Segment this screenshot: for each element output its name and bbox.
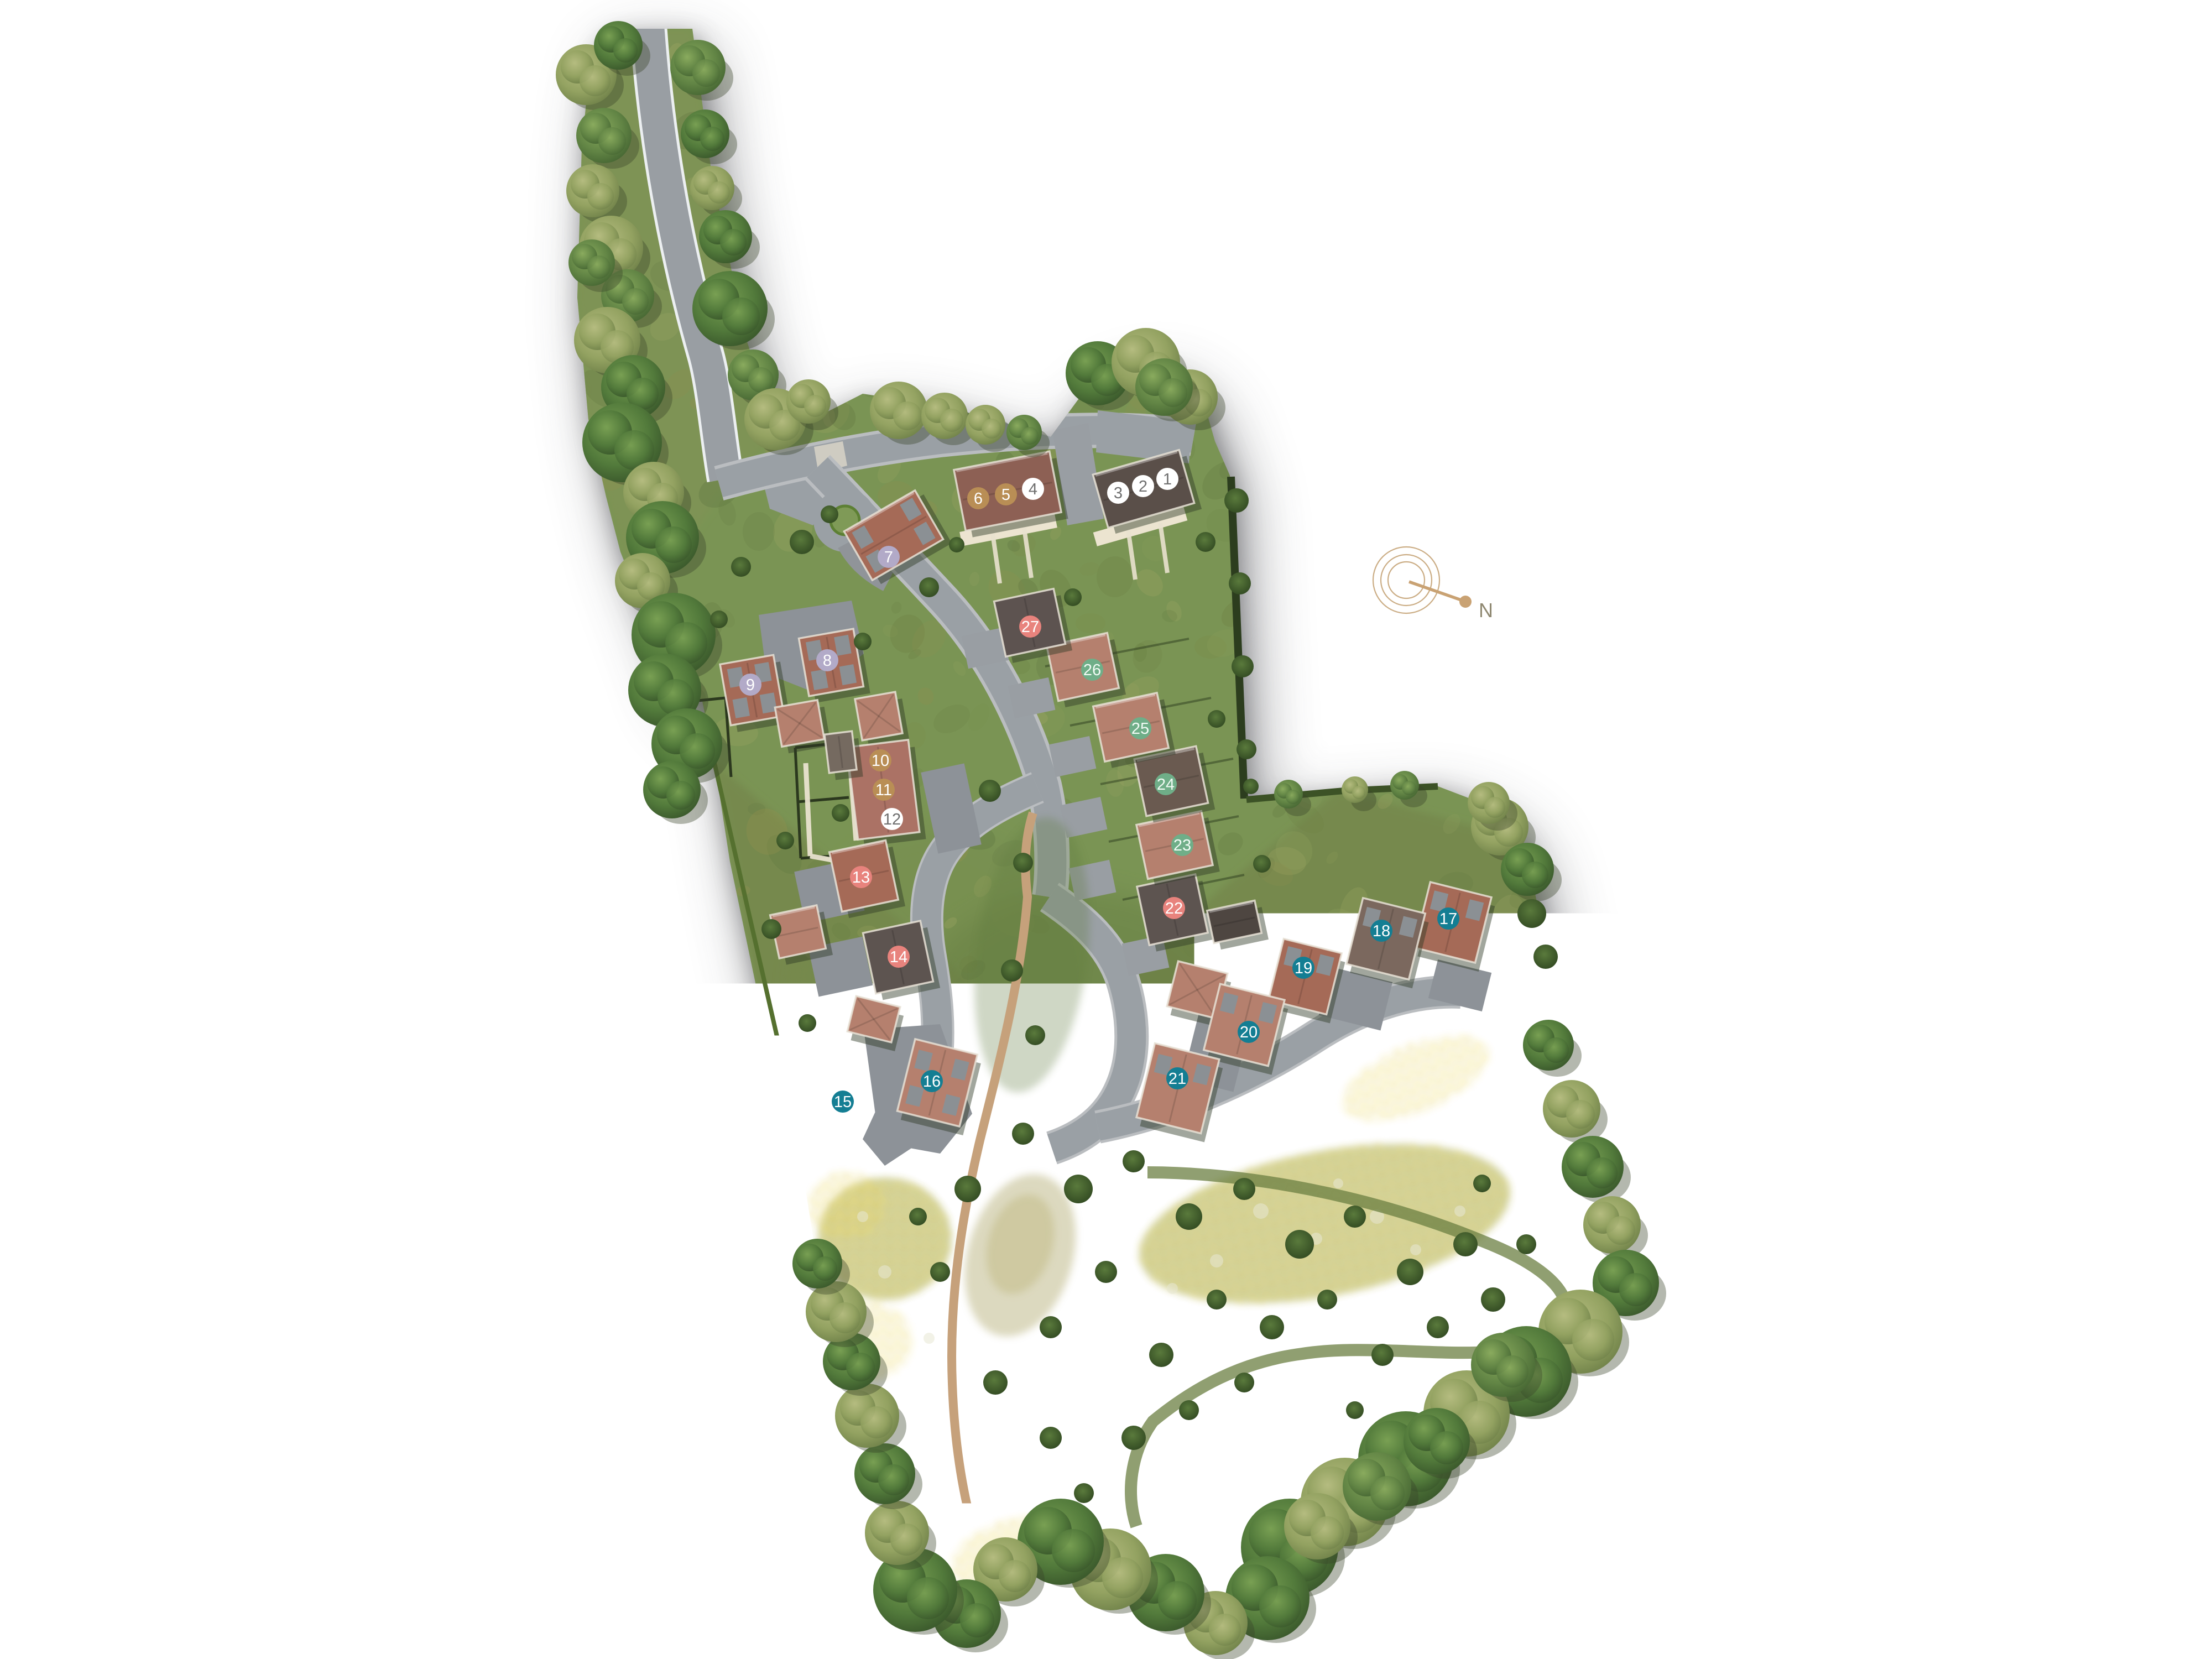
svg-text:2: 2 bbox=[1139, 478, 1147, 495]
svg-text:9: 9 bbox=[746, 676, 755, 694]
svg-text:24: 24 bbox=[1157, 776, 1175, 794]
svg-text:16: 16 bbox=[923, 1073, 941, 1091]
svg-text:17: 17 bbox=[1439, 910, 1457, 928]
svg-text:13: 13 bbox=[852, 869, 870, 886]
svg-text:11: 11 bbox=[875, 781, 892, 799]
svg-text:8: 8 bbox=[823, 652, 832, 670]
svg-text:10: 10 bbox=[872, 752, 889, 770]
svg-text:4: 4 bbox=[1029, 481, 1037, 498]
svg-text:6: 6 bbox=[974, 490, 983, 508]
svg-text:26: 26 bbox=[1083, 661, 1101, 679]
svg-text:5: 5 bbox=[1001, 486, 1010, 504]
svg-text:23: 23 bbox=[1173, 837, 1191, 854]
svg-text:15: 15 bbox=[834, 1093, 852, 1111]
svg-text:14: 14 bbox=[890, 948, 907, 966]
svg-text:25: 25 bbox=[1131, 720, 1149, 738]
svg-text:N: N bbox=[1479, 599, 1493, 622]
svg-text:1: 1 bbox=[1163, 471, 1172, 488]
svg-text:20: 20 bbox=[1240, 1024, 1258, 1041]
svg-text:21: 21 bbox=[1168, 1070, 1186, 1088]
svg-text:27: 27 bbox=[1021, 618, 1039, 636]
svg-text:18: 18 bbox=[1373, 922, 1390, 940]
svg-text:3: 3 bbox=[1114, 484, 1123, 502]
svg-text:22: 22 bbox=[1165, 900, 1183, 917]
svg-text:19: 19 bbox=[1295, 959, 1312, 977]
svg-text:12: 12 bbox=[883, 811, 901, 828]
svg-text:7: 7 bbox=[884, 549, 893, 566]
